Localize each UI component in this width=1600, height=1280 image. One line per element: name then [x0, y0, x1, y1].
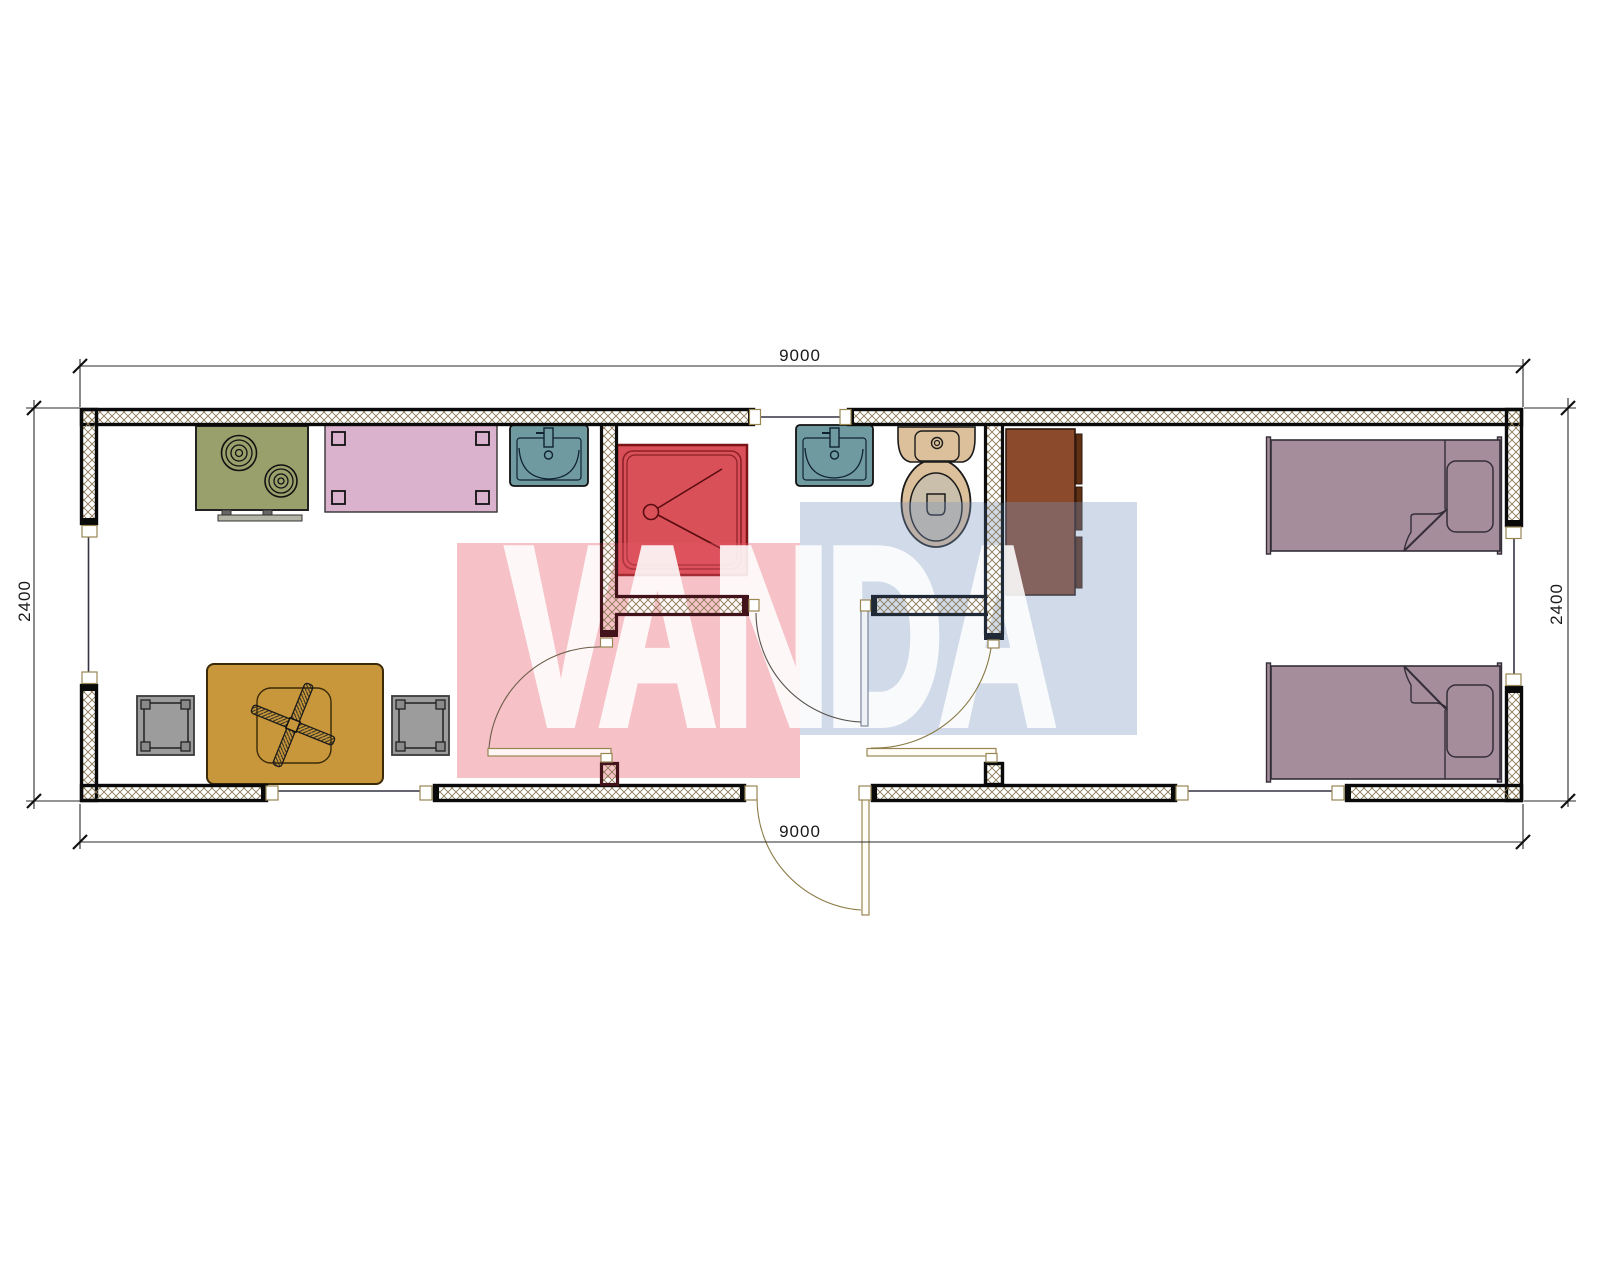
svg-text:9000: 9000 — [779, 346, 821, 365]
svg-text:2400: 2400 — [1547, 583, 1566, 625]
svg-text:VANDA: VANDA — [506, 495, 1053, 779]
svg-text:9000: 9000 — [779, 822, 821, 841]
svg-text:2400: 2400 — [15, 580, 34, 622]
